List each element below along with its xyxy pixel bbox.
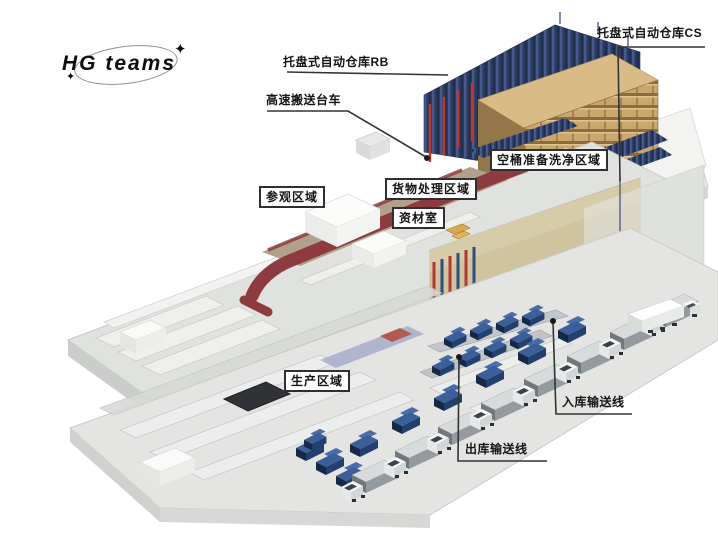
label-cs-warehouse: 托盘式自动仓库CS	[597, 26, 702, 40]
cart-leader-line	[267, 111, 426, 157]
rb-leader-line	[287, 72, 448, 75]
outbound-anchor-dot	[456, 354, 462, 360]
label-production-area: 生产区域	[284, 370, 350, 392]
label-outbound-conveyor: 出库输送线	[465, 442, 528, 456]
label-cargo-area: 货物处理区域	[385, 178, 477, 200]
cart-anchor-dot	[424, 155, 430, 161]
inbound-anchor-dot	[550, 318, 556, 324]
label-rb-warehouse: 托盘式自动仓库RB	[283, 55, 389, 69]
label-washing-area: 空桶准备洗净区域	[490, 149, 608, 171]
label-transfer-cart: 高速搬送台车	[266, 93, 341, 107]
label-visit-area: 参观区域	[259, 186, 325, 208]
label-material-room: 资材室	[392, 207, 445, 229]
label-inbound-conveyor: 入库输送线	[562, 395, 625, 409]
warehouse-diagram-page: ✦ ✦ HG teams 托盘式自动仓库RB 托盘式自动仓库CS 高速搬送台车 …	[0, 0, 718, 533]
logo-text: HG teams	[62, 52, 176, 76]
hg-teams-logo: ✦ ✦ HG teams	[52, 40, 202, 96]
